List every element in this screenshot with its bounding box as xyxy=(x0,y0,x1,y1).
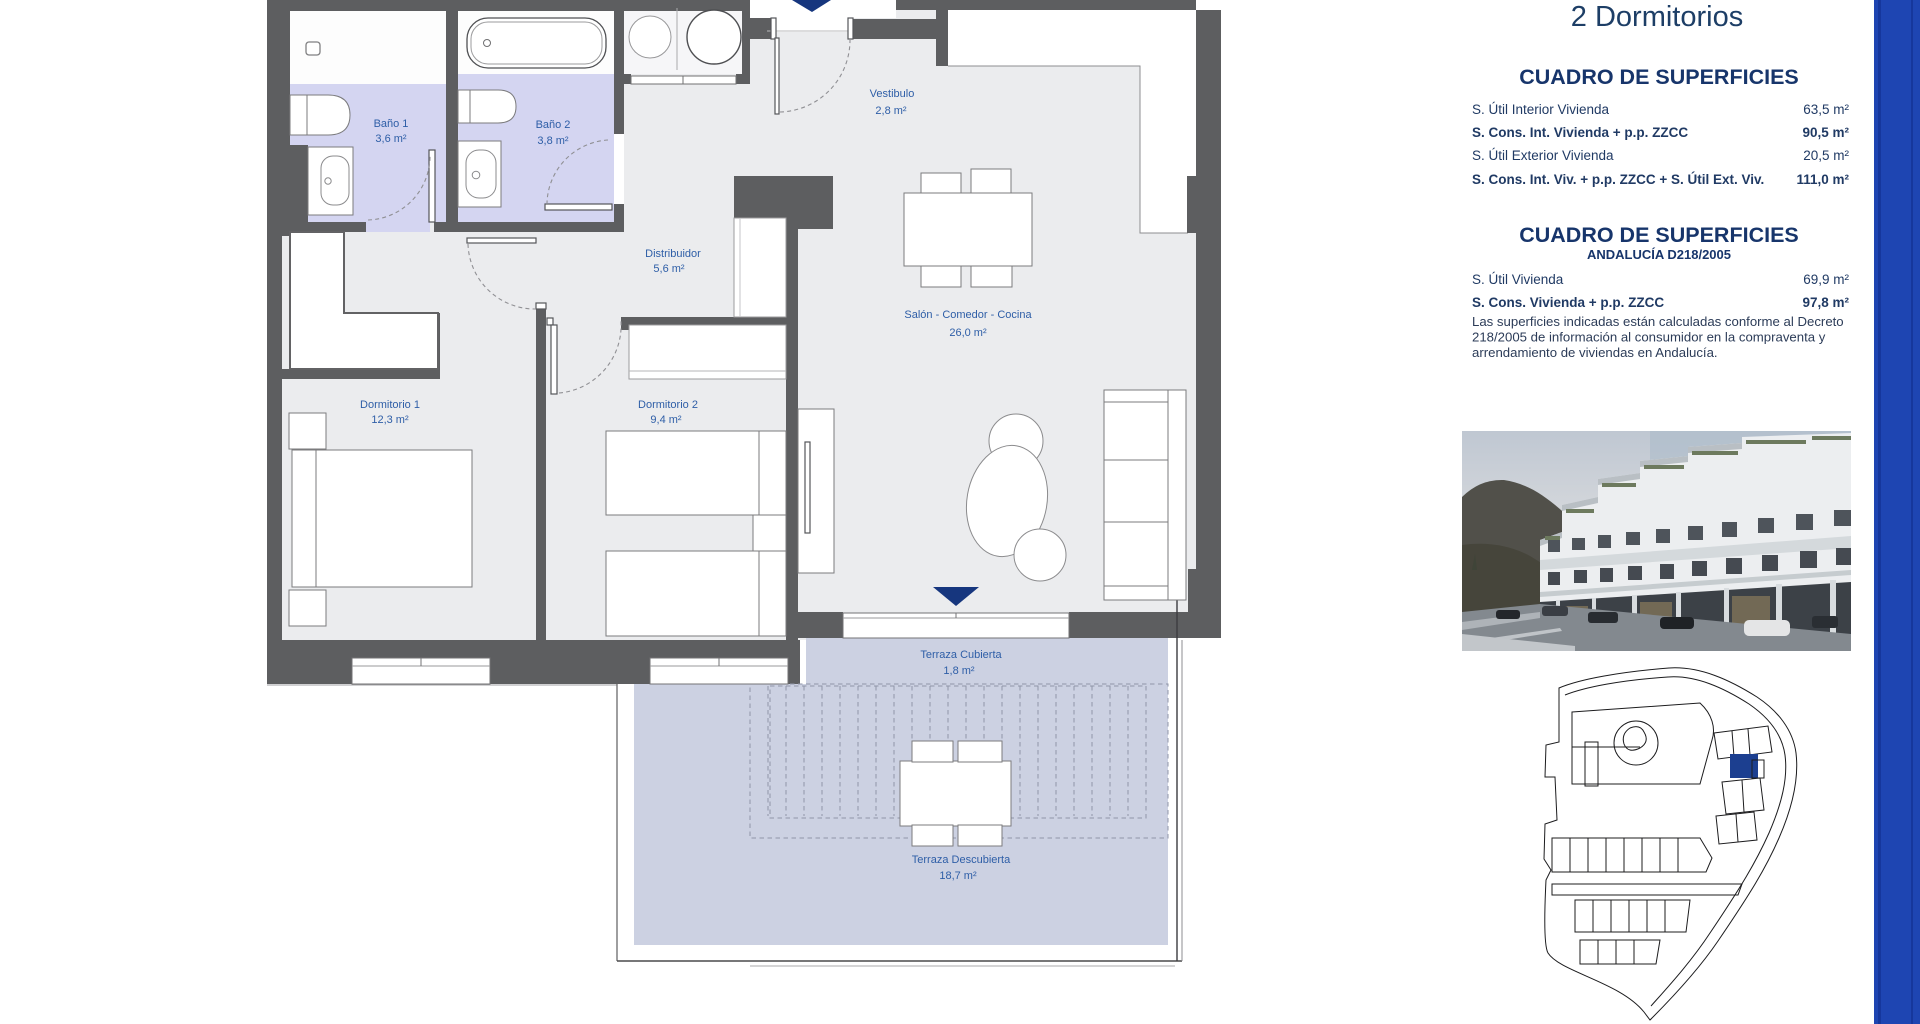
svg-text:CUADRO DE SUPERFICIES: CUADRO DE SUPERFICIES xyxy=(1519,65,1799,89)
svg-text:5,6 m²: 5,6 m² xyxy=(653,263,685,275)
svg-text:S. Cons. Vivienda + p.p. ZZCC: S. Cons. Vivienda + p.p. ZZCC xyxy=(1472,295,1664,310)
svg-text:111,0 m²: 111,0 m² xyxy=(1796,172,1849,187)
svg-text:3,6 m²: 3,6 m² xyxy=(375,133,407,145)
svg-text:2 Dormitorios: 2 Dormitorios xyxy=(1571,1,1743,33)
svg-text:S. Cons. Int. Vivienda + p.p.: S. Cons. Int. Vivienda + p.p. ZZCC xyxy=(1472,125,1688,140)
svg-text:97,8 m²: 97,8 m² xyxy=(1802,295,1849,310)
svg-text:3,8 m²: 3,8 m² xyxy=(537,135,569,147)
svg-text:Vestibulo: Vestibulo xyxy=(870,88,915,100)
svg-text:218/2005 de información al con: 218/2005 de información al consumidor en… xyxy=(1472,330,1826,345)
svg-text:69,9 m²: 69,9 m² xyxy=(1803,272,1849,287)
svg-text:Terraza Descubierta: Terraza Descubierta xyxy=(912,854,1011,866)
svg-text:Dormitorio 1: Dormitorio 1 xyxy=(360,399,420,411)
svg-text:Dormitorio 2: Dormitorio 2 xyxy=(638,399,698,411)
svg-text:S. Cons. Int. Viv. + p.p. ZZCC: S. Cons. Int. Viv. + p.p. ZZCC + S. Útil… xyxy=(1472,172,1764,187)
svg-text:2,8 m²: 2,8 m² xyxy=(875,105,907,117)
svg-text:Baño 2: Baño 2 xyxy=(536,119,571,131)
svg-text:63,5 m²: 63,5 m² xyxy=(1803,102,1849,117)
svg-text:26,0 m²: 26,0 m² xyxy=(949,327,987,339)
svg-text:Las superficies indicadas está: Las superficies indicadas están calculad… xyxy=(1472,314,1844,329)
svg-text:Distribuidor: Distribuidor xyxy=(645,248,701,260)
svg-text:9,4 m²: 9,4 m² xyxy=(650,414,682,426)
svg-text:S. Útil Exterior Vivienda: S. Útil Exterior Vivienda xyxy=(1472,148,1614,163)
svg-text:S. Útil Interior Vivienda: S. Útil Interior Vivienda xyxy=(1472,102,1610,117)
svg-text:ANDALUCÍA D218/2005: ANDALUCÍA D218/2005 xyxy=(1587,247,1731,262)
svg-text:Terraza Cubierta: Terraza Cubierta xyxy=(920,649,1002,661)
svg-text:CUADRO DE SUPERFICIES: CUADRO DE SUPERFICIES xyxy=(1519,223,1799,247)
svg-text:Salón - Comedor - Cocina: Salón - Comedor - Cocina xyxy=(904,309,1032,321)
svg-text:90,5 m²: 90,5 m² xyxy=(1802,125,1849,140)
svg-text:12,3 m²: 12,3 m² xyxy=(371,414,409,426)
svg-text:Baño 1: Baño 1 xyxy=(374,118,409,130)
svg-text:18,7 m²: 18,7 m² xyxy=(939,870,977,882)
svg-text:20,5 m²: 20,5 m² xyxy=(1803,148,1849,163)
svg-text:1,8 m²: 1,8 m² xyxy=(943,665,975,677)
svg-text:arrendamiento de viviendas en: arrendamiento de viviendas en Andalucía. xyxy=(1472,345,1718,360)
svg-text:S. Útil Vivienda: S. Útil Vivienda xyxy=(1472,272,1564,287)
